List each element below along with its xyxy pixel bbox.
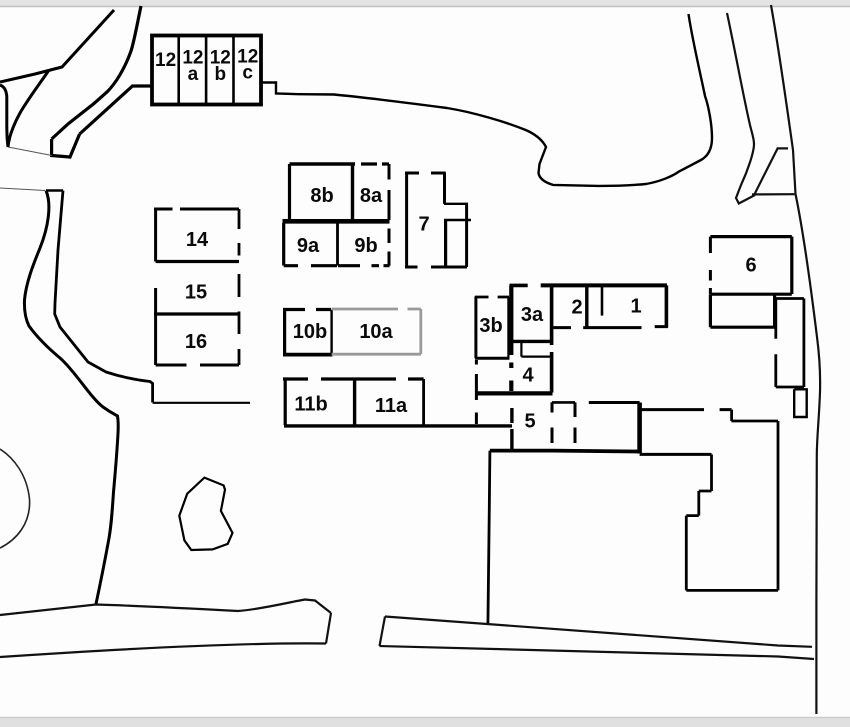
svg-text:1: 1 (630, 296, 641, 318)
svg-text:14: 14 (186, 229, 209, 251)
svg-text:4: 4 (522, 365, 534, 387)
svg-text:11b: 11b (294, 394, 327, 416)
svg-text:b: b (214, 64, 226, 85)
svg-text:10a: 10a (359, 321, 393, 343)
svg-text:12: 12 (155, 50, 176, 71)
svg-text:8b: 8b (310, 185, 333, 207)
svg-text:5: 5 (524, 411, 535, 433)
svg-text:9b: 9b (354, 235, 377, 257)
svg-text:a: a (188, 64, 199, 85)
svg-text:9a: 9a (297, 235, 320, 257)
svg-text:15: 15 (185, 282, 207, 304)
svg-text:16: 16 (185, 331, 207, 353)
svg-text:2: 2 (571, 297, 582, 319)
svg-text:8a: 8a (360, 185, 383, 207)
svg-text:7: 7 (418, 214, 429, 236)
svg-text:10b: 10b (293, 321, 327, 343)
svg-text:11a: 11a (375, 395, 408, 417)
svg-text:c: c (242, 63, 253, 84)
svg-text:3a: 3a (521, 304, 544, 326)
svg-text:6: 6 (745, 255, 756, 277)
svg-text:3b: 3b (479, 315, 502, 337)
